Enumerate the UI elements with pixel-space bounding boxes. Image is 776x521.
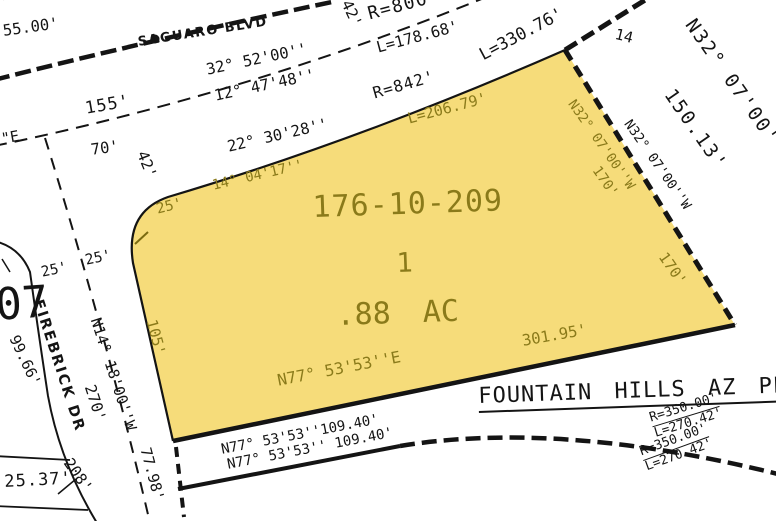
lot-14-label: 14 <box>613 27 634 46</box>
dim-70-label: 70' <box>90 139 120 158</box>
lower-boundary-curve-dashed <box>400 438 776 474</box>
left-lot-line-2 <box>0 506 88 510</box>
left-lot-line-1 <box>0 456 70 460</box>
num-07-label: 07 <box>0 280 50 328</box>
section-line-northeast <box>565 0 658 50</box>
dim-25-37-label: 25.37' <box>4 470 72 491</box>
left-edge-tick <box>2 259 10 272</box>
plat-map: 42'00'' 55.00' SAGUARO BLVD 155' 32° 52'… <box>0 0 776 521</box>
bearing-e-cut-label: "E <box>0 129 20 147</box>
southwest-corner-stub <box>176 447 184 517</box>
parcel-apn-label: 176-10-209 <box>312 186 504 223</box>
parcel-lot-number: 1 <box>396 249 413 277</box>
parcel-area-label: .88 AC <box>336 297 459 331</box>
